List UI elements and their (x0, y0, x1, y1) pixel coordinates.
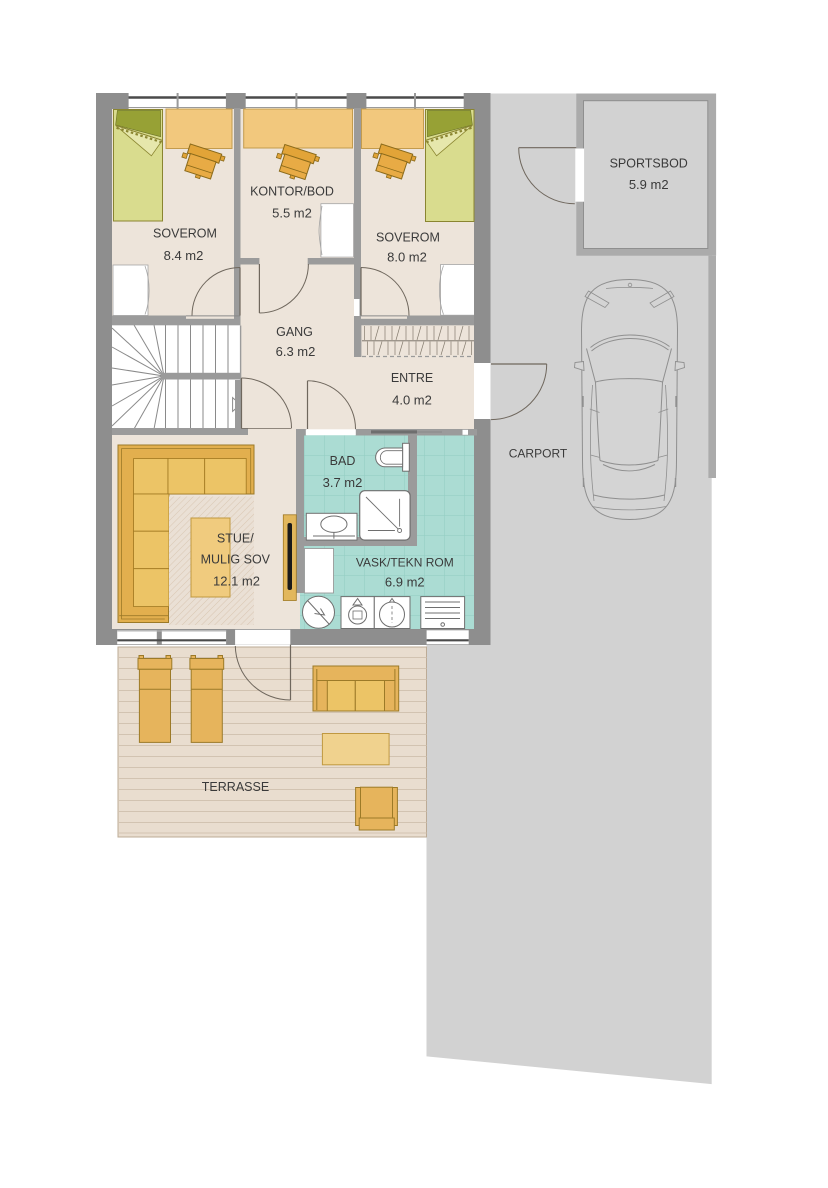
svg-text:12.1 m2: 12.1 m2 (213, 574, 260, 589)
svg-text:3.7 m2: 3.7 m2 (323, 475, 363, 490)
svg-text:ENTRE: ENTRE (391, 371, 433, 385)
svg-text:STUE/: STUE/ (217, 532, 254, 546)
svg-text:6.9 m2: 6.9 m2 (385, 575, 425, 590)
svg-text:SOVEROM: SOVEROM (153, 227, 217, 241)
svg-text:8.4 m2: 8.4 m2 (164, 248, 204, 263)
svg-text:CARPORT: CARPORT (509, 447, 568, 461)
svg-text:SPORTSBOD: SPORTSBOD (610, 157, 688, 171)
svg-text:5.9 m2: 5.9 m2 (629, 177, 669, 192)
svg-text:6.3 m2: 6.3 m2 (276, 344, 316, 359)
svg-text:5.5 m2: 5.5 m2 (272, 206, 312, 221)
svg-text:8.0 m2: 8.0 m2 (387, 250, 427, 265)
svg-text:BAD: BAD (330, 454, 356, 468)
svg-text:MULIG SOV: MULIG SOV (201, 553, 271, 567)
svg-text:4.0 m2: 4.0 m2 (392, 392, 432, 407)
svg-text:TERRASSE: TERRASSE (202, 780, 269, 794)
svg-text:SOVEROM: SOVEROM (376, 230, 440, 244)
svg-text:GANG: GANG (276, 325, 313, 339)
svg-text:VASK/TEKN ROM: VASK/TEKN ROM (356, 556, 454, 570)
svg-text:KONTOR/BOD: KONTOR/BOD (250, 185, 334, 199)
